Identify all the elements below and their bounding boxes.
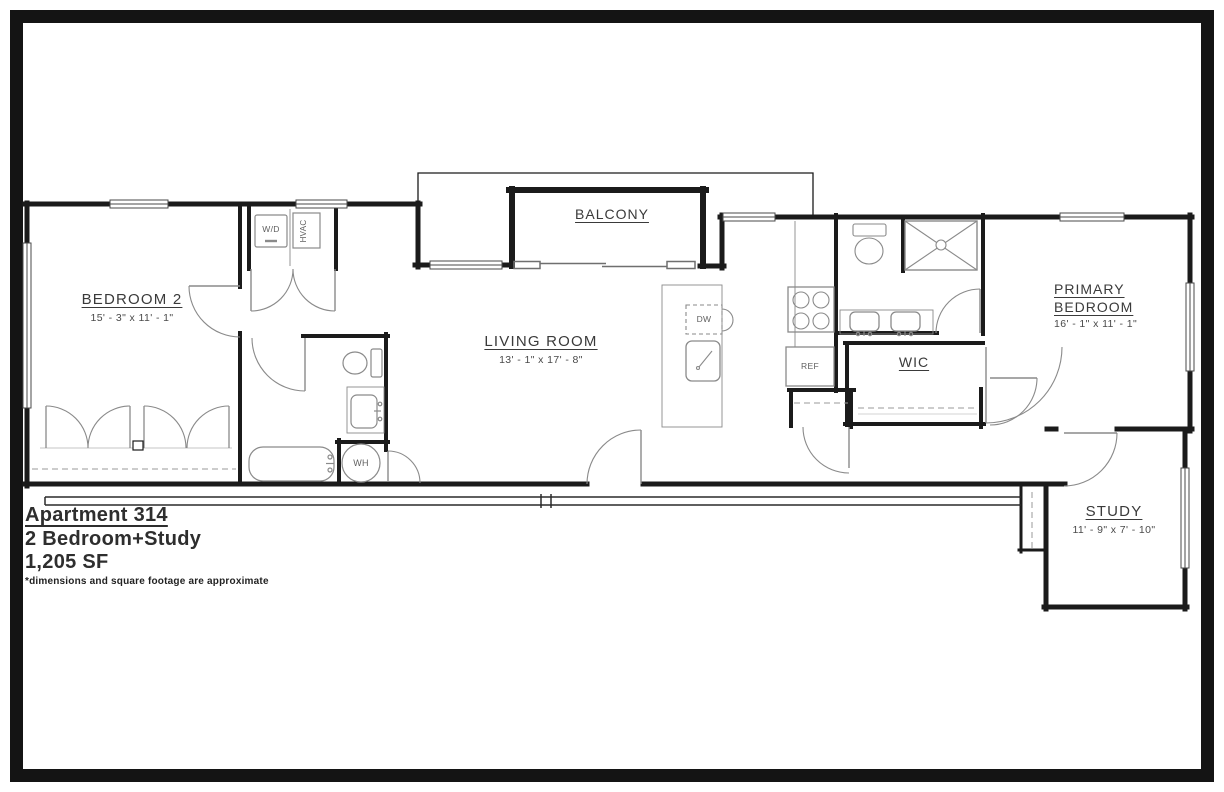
shower-icon (905, 221, 977, 270)
unit-area: 1,205 SF (25, 551, 109, 574)
study-name: STUDY (1086, 503, 1143, 520)
balcony-walls (509, 189, 706, 266)
hvac-label: HVAC (299, 212, 315, 250)
study-dims: 11' - 9" x 7' - 10" (1039, 524, 1189, 536)
bathtub-icon (249, 447, 334, 481)
washer-dryer-label: W/D (255, 224, 287, 234)
floor-plan-page: BEDROOM 2 15' - 3" x 11' - 1" LIVING ROO… (0, 0, 1224, 792)
kitchen-fixtures (662, 221, 834, 427)
primary-bathroom-fixtures (840, 221, 977, 336)
sliding-door (514, 262, 695, 269)
bedroom2-label: BEDROOM 2 15' - 3" x 11' - 1" (57, 291, 207, 324)
sink-vanity-icon (347, 387, 384, 433)
balcony-label: BALCONY (537, 206, 687, 224)
primary-bedroom-dims: 16' - 1" x 11' - 1" (1054, 318, 1137, 330)
corridor-lines (45, 494, 1021, 508)
wic-name: WIC (899, 354, 929, 370)
bedroom2-dims: 15' - 3" x 11' - 1" (57, 312, 207, 324)
primary-bedroom-label: PRIMARY BEDROOM 16' - 1" x 11' - 1" (1054, 281, 1137, 330)
primary-bedroom-name-2: BEDROOM (1054, 299, 1137, 315)
primary-toilet-icon (853, 224, 886, 264)
study-label: STUDY 11' - 9" x 7' - 10" (1039, 503, 1189, 536)
dishwasher-label: DW (686, 314, 722, 324)
water-heater-label: WH (343, 458, 379, 468)
disclaimer-note: *dimensions and square footage are appro… (25, 576, 269, 587)
living-room-label: LIVING ROOM 13' - 1" x 17' - 8" (466, 333, 616, 366)
living-room-dims: 13' - 1" x 17' - 8" (466, 354, 616, 366)
windows (23, 200, 1194, 568)
primary-bedroom-name-1: PRIMARY (1054, 281, 1137, 297)
balcony-name: BALCONY (575, 206, 649, 222)
island-sink-icon (686, 341, 720, 381)
unit-type: 2 Bedroom+Study (25, 528, 201, 551)
floor-plan-drawing (0, 0, 1224, 792)
bedroom2-name: BEDROOM 2 (82, 291, 183, 308)
apartment-title: Apartment 314 (25, 504, 168, 527)
refrigerator-label: REF (786, 361, 834, 371)
toilet-icon (343, 349, 382, 377)
kitchen-island (662, 285, 722, 427)
wic-label: WIC (879, 354, 949, 372)
closet-center-post (133, 441, 143, 450)
living-room-name: LIVING ROOM (484, 333, 597, 350)
